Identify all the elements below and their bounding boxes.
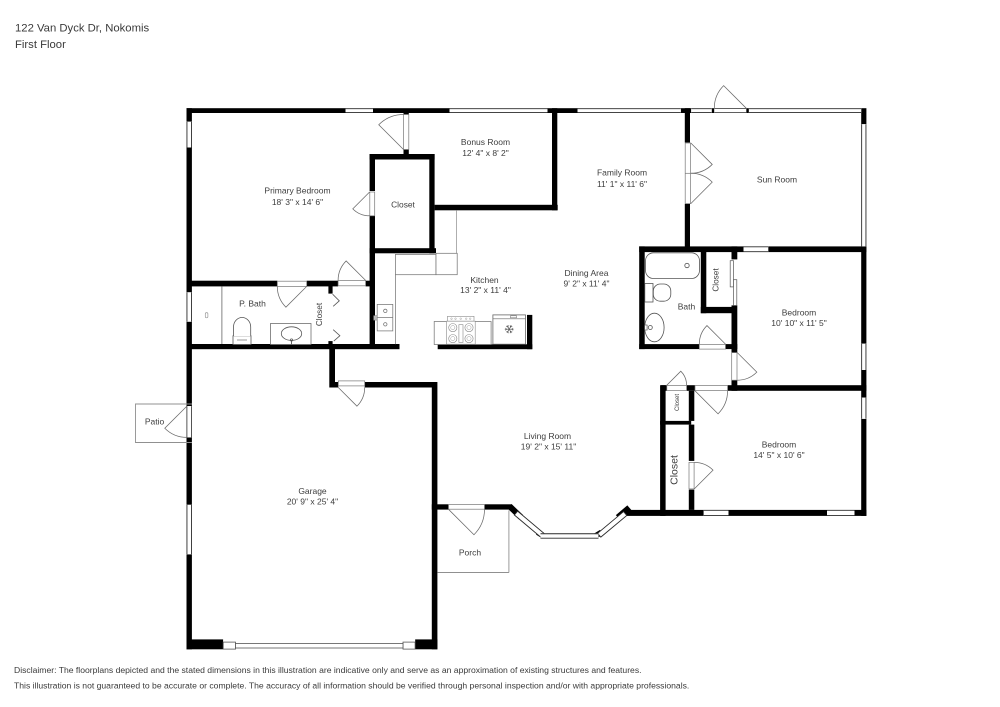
svg-text:First Floor: First Floor bbox=[15, 39, 66, 51]
svg-text:Dining Area: Dining Area bbox=[565, 268, 609, 278]
svg-text:Sun Room: Sun Room bbox=[757, 175, 797, 185]
svg-text:12' 4" x 8' 2": 12' 4" x 8' 2" bbox=[462, 148, 509, 158]
svg-text:Garage: Garage bbox=[298, 486, 327, 496]
svg-text:Living Room: Living Room bbox=[524, 431, 571, 441]
svg-text:13' 2" x 11' 4": 13' 2" x 11' 4" bbox=[460, 285, 511, 295]
svg-text:Bedroom: Bedroom bbox=[782, 308, 817, 318]
svg-text:Closet: Closet bbox=[315, 302, 324, 326]
svg-text:P. Bath: P. Bath bbox=[239, 299, 266, 309]
svg-text:Closet: Closet bbox=[391, 200, 415, 210]
svg-text:Patio: Patio bbox=[145, 417, 165, 427]
svg-text:Bonus Room: Bonus Room bbox=[461, 137, 510, 147]
svg-text:11' 1" x 11' 6": 11' 1" x 11' 6" bbox=[597, 179, 647, 189]
svg-text:9' 2" x 11' 4": 9' 2" x 11' 4" bbox=[564, 279, 610, 289]
svg-text:Kitchen: Kitchen bbox=[470, 275, 499, 285]
svg-text:Family Room: Family Room bbox=[597, 168, 647, 178]
svg-text:Bath: Bath bbox=[678, 302, 696, 312]
svg-text:This illustration is not guara: This illustration is not guaranteed to b… bbox=[14, 681, 689, 691]
svg-text:Closet: Closet bbox=[675, 394, 681, 411]
svg-text:14' 5" x 10' 6": 14' 5" x 10' 6" bbox=[753, 450, 804, 460]
svg-text:20' 9" x 25' 4": 20' 9" x 25' 4" bbox=[287, 497, 338, 507]
svg-text:Porch: Porch bbox=[459, 548, 481, 558]
svg-text:Bedroom: Bedroom bbox=[762, 440, 797, 450]
svg-text:18' 3" x 14' 6": 18' 3" x 14' 6" bbox=[272, 197, 323, 207]
svg-text:Closet: Closet bbox=[712, 268, 721, 292]
svg-text:19' 2" x 15' 11": 19' 2" x 15' 11" bbox=[521, 442, 576, 452]
svg-text:10' 10" x 11' 5": 10' 10" x 11' 5" bbox=[771, 318, 826, 328]
svg-text:122 Van Dyck Dr, Nokomis: 122 Van Dyck Dr, Nokomis bbox=[15, 23, 149, 35]
svg-text:Primary Bedroom: Primary Bedroom bbox=[264, 186, 330, 196]
svg-text:Closet: Closet bbox=[669, 455, 681, 485]
svg-text:Disclaimer: The floorplans dep: Disclaimer: The floorplans depicted and … bbox=[14, 665, 642, 675]
